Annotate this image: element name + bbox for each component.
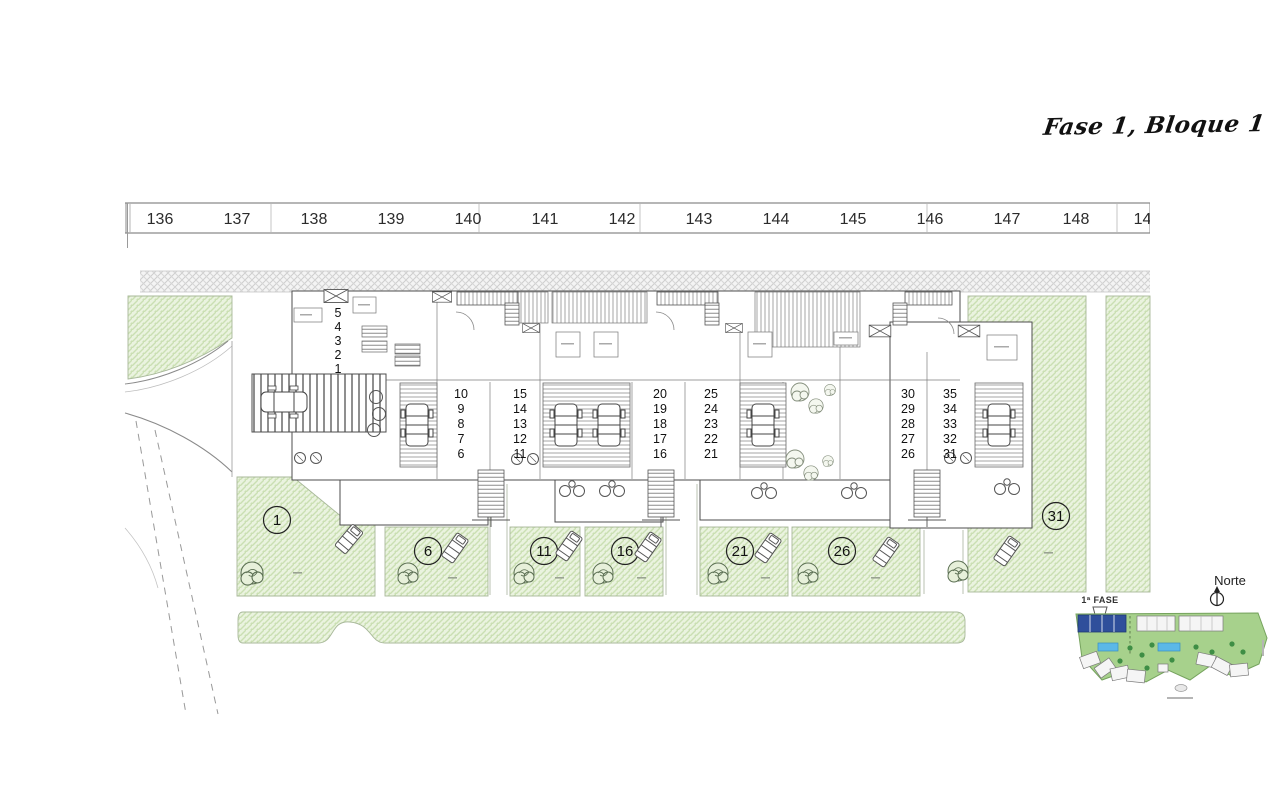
street-number: 145	[840, 211, 867, 228]
unit-number: 11	[514, 447, 527, 461]
garden-strip-far-right	[1106, 296, 1150, 592]
minimap-micro-text	[1167, 697, 1193, 699]
minimap-phase1-building	[1078, 615, 1126, 632]
shaded-patio-1	[518, 292, 548, 323]
unit-number: 12	[513, 432, 527, 446]
stair-ladder	[505, 303, 519, 325]
unit-column-4: 20 19 18 17 16	[653, 387, 667, 461]
tree-icon	[948, 561, 968, 582]
tree-icon	[809, 399, 823, 413]
skylight-icon	[523, 323, 540, 332]
stair-ladder	[705, 303, 719, 325]
unit-number: 17	[653, 432, 667, 446]
unit-number: 22	[704, 432, 718, 446]
unit-number: 25	[704, 387, 718, 401]
street-number-clipped: 149	[1134, 211, 1161, 228]
unit-number: 8	[458, 417, 465, 431]
terrace-2	[555, 480, 663, 522]
plot-number: 6	[424, 543, 432, 560]
street-number: 141	[532, 211, 559, 228]
road-lane-dash	[136, 421, 186, 714]
unit-number: 32	[943, 432, 957, 446]
plot-number: 21	[732, 543, 749, 560]
stair-run	[905, 292, 952, 305]
plot-micro-label	[637, 577, 646, 579]
street-number: 144	[763, 211, 790, 228]
tree-icon	[514, 563, 534, 584]
unit-column-6: 30 29 28 27 26	[901, 387, 915, 461]
plot-micro-label	[448, 577, 457, 579]
unit-number: 24	[704, 402, 718, 416]
street-number-band: 136 137 138 139 140 141 142 143 144 145 …	[125, 203, 1160, 233]
unit-number: 27	[901, 432, 915, 446]
minimap-buildings-top	[1137, 616, 1223, 631]
tree-icon	[824, 384, 835, 395]
plot-number: 26	[834, 543, 851, 560]
skylight-icon	[958, 325, 980, 337]
garden-area-top-left	[128, 296, 232, 379]
terrace-3	[700, 480, 890, 520]
unit-number: 31	[943, 447, 957, 461]
tree-icon	[241, 562, 263, 585]
unit-number: 9	[458, 402, 465, 416]
unit-number: 20	[653, 387, 667, 401]
unit-number: 30	[901, 387, 915, 401]
tree-icon	[791, 383, 809, 401]
unit-number: 26	[901, 447, 915, 461]
unit-column-5: 25 24 23 22 21	[704, 387, 718, 461]
street-number: 136	[147, 211, 174, 228]
building-block	[252, 290, 1032, 529]
unit-column-1: 5 4 3 2 1	[335, 306, 342, 376]
street-number: 137	[224, 211, 251, 228]
unit-number: 23	[704, 417, 718, 431]
north-arrow-icon	[1211, 586, 1224, 606]
north-compass: Norte	[1211, 573, 1246, 606]
unit-number: 10	[454, 387, 468, 401]
stair-down	[478, 470, 504, 517]
unit-column-3: 15 14 13 12 11	[513, 387, 527, 461]
unit-number: 1	[335, 362, 342, 376]
skylight-icon	[324, 290, 348, 303]
plot-number: 11	[536, 543, 552, 560]
street-number: 147	[994, 211, 1021, 228]
minimap-pool	[1158, 643, 1180, 651]
skylight-icon	[432, 292, 451, 302]
unit-number: 6	[458, 447, 465, 461]
unit-number: 14	[513, 402, 527, 416]
unit-number: 3	[335, 334, 342, 348]
skylight-icon	[869, 325, 891, 337]
plot-number: 31	[1048, 508, 1065, 525]
street-number: 148	[1063, 211, 1090, 228]
tree-icon	[823, 456, 834, 467]
unit-number: 16	[653, 447, 667, 461]
stair-down	[648, 470, 674, 517]
tree-icon	[398, 563, 418, 584]
compass-label: Norte	[1214, 573, 1246, 588]
road-lane-dash	[155, 430, 218, 714]
terrace-1	[340, 480, 488, 525]
tree-icon	[708, 563, 728, 584]
page-title: Fase 1, Bloque 1	[1042, 110, 1266, 141]
unit-number: 19	[653, 402, 667, 416]
unit-number: 13	[513, 417, 527, 431]
unit-number: 5	[335, 306, 342, 320]
floor-plan-page: Fase 1, Bloque 1	[0, 0, 1280, 800]
table	[983, 404, 1015, 446]
tree-icon	[786, 450, 804, 468]
unit-column-7: 35 34 33 32 31	[943, 387, 957, 461]
tree-icon	[798, 563, 818, 584]
street-number: 142	[609, 211, 636, 228]
minimap-roundabout	[1175, 685, 1187, 692]
location-minimap: 1ª FASE	[1076, 595, 1267, 699]
plot-micro-label	[555, 577, 564, 579]
minimap-micro-text-vertical	[1262, 640, 1264, 656]
sidewalk-strip	[140, 271, 1150, 292]
street-number: 139	[378, 211, 405, 228]
shaded-patio-2	[552, 292, 647, 323]
street-number: 140	[455, 211, 482, 228]
plot-micro-label	[871, 577, 880, 579]
stair-ladder	[893, 303, 907, 325]
unit-number: 4	[335, 320, 342, 334]
unit-number: 33	[943, 417, 957, 431]
unit-number: 7	[458, 432, 465, 446]
street-number: 143	[686, 211, 713, 228]
plot-micro-label	[293, 572, 302, 574]
plot-micro-label	[761, 577, 770, 579]
table	[593, 404, 625, 446]
unit-number: 21	[704, 447, 718, 461]
garden-strip-bottom	[238, 612, 965, 643]
street-number: 146	[917, 211, 944, 228]
unit-number: 18	[653, 417, 667, 431]
plot-micro-label	[1044, 552, 1053, 554]
tree-icon	[593, 563, 613, 584]
skylight-icon	[726, 323, 743, 332]
access-road	[125, 341, 232, 714]
plot-number: 16	[617, 543, 634, 560]
unit-number: 28	[901, 417, 915, 431]
unit-number: 34	[943, 402, 957, 416]
unit-number: 2	[335, 348, 342, 362]
table	[747, 404, 779, 446]
minimap-pool	[1098, 643, 1118, 651]
garden-plot-area-26	[792, 527, 920, 596]
unit-number: 35	[943, 387, 957, 401]
phase-label: 1ª FASE	[1081, 595, 1118, 605]
street-number: 138	[301, 211, 328, 228]
unit-number: 29	[901, 402, 915, 416]
unit-number: 15	[513, 387, 527, 401]
tree-icon	[804, 466, 818, 480]
table	[401, 404, 433, 446]
table	[550, 404, 582, 446]
stair-down	[914, 470, 940, 517]
plot-number: 1	[273, 512, 281, 529]
